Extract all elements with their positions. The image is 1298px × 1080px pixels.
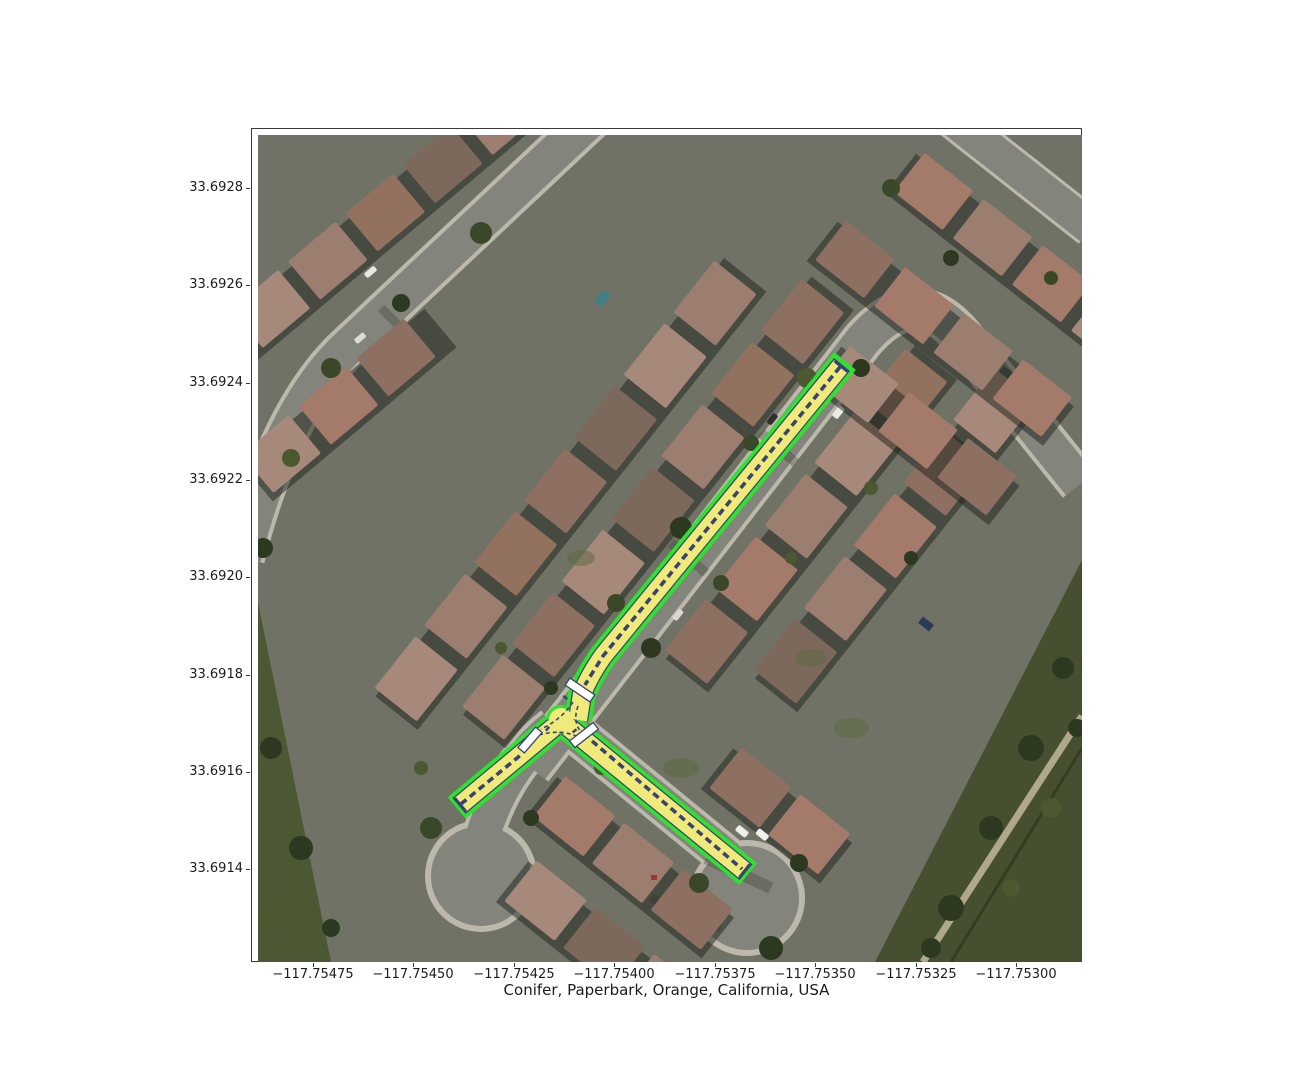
x-tick-label: −117.75475 xyxy=(265,967,361,982)
y-tick-mark xyxy=(246,675,250,676)
y-tick-label: 33.6922 xyxy=(160,472,243,487)
y-tick-mark xyxy=(246,577,250,578)
x-tick-label: −117.75425 xyxy=(466,967,562,982)
y-tick-label: 33.6918 xyxy=(160,667,243,682)
y-tick-label: 33.6928 xyxy=(160,180,243,195)
red-car xyxy=(651,875,657,880)
x-tick-label: −117.75375 xyxy=(667,967,763,982)
y-tick-mark xyxy=(246,383,250,384)
aerial-background xyxy=(258,135,1082,962)
y-tick-mark xyxy=(246,480,250,481)
y-tick-label: 33.6916 xyxy=(160,764,243,779)
matplotlib-figure: 33.6928 33.6926 33.6924 33.6922 33.6920 … xyxy=(0,0,1298,1080)
y-tick-label: 33.6914 xyxy=(160,861,243,876)
y-tick-mark xyxy=(246,285,250,286)
map-axes xyxy=(251,128,1082,962)
y-tick-mark xyxy=(246,772,250,773)
x-tick-label: −117.75325 xyxy=(868,967,964,982)
x-axis-label: Conifer, Paperbark, Orange, California, … xyxy=(251,981,1082,999)
x-tick-label: −117.75450 xyxy=(365,967,461,982)
y-tick-mark xyxy=(246,869,250,870)
x-tick-label: −117.75300 xyxy=(968,967,1064,982)
y-tick-label: 33.6920 xyxy=(160,569,243,584)
intersection-area xyxy=(549,708,573,732)
x-tick-label: −117.75350 xyxy=(767,967,863,982)
y-tick-label: 33.6924 xyxy=(160,375,243,390)
x-tick-label: −117.75400 xyxy=(566,967,662,982)
y-tick-mark xyxy=(246,188,250,189)
aerial-map-canvas xyxy=(258,135,1082,962)
y-tick-label: 33.6926 xyxy=(160,277,243,292)
